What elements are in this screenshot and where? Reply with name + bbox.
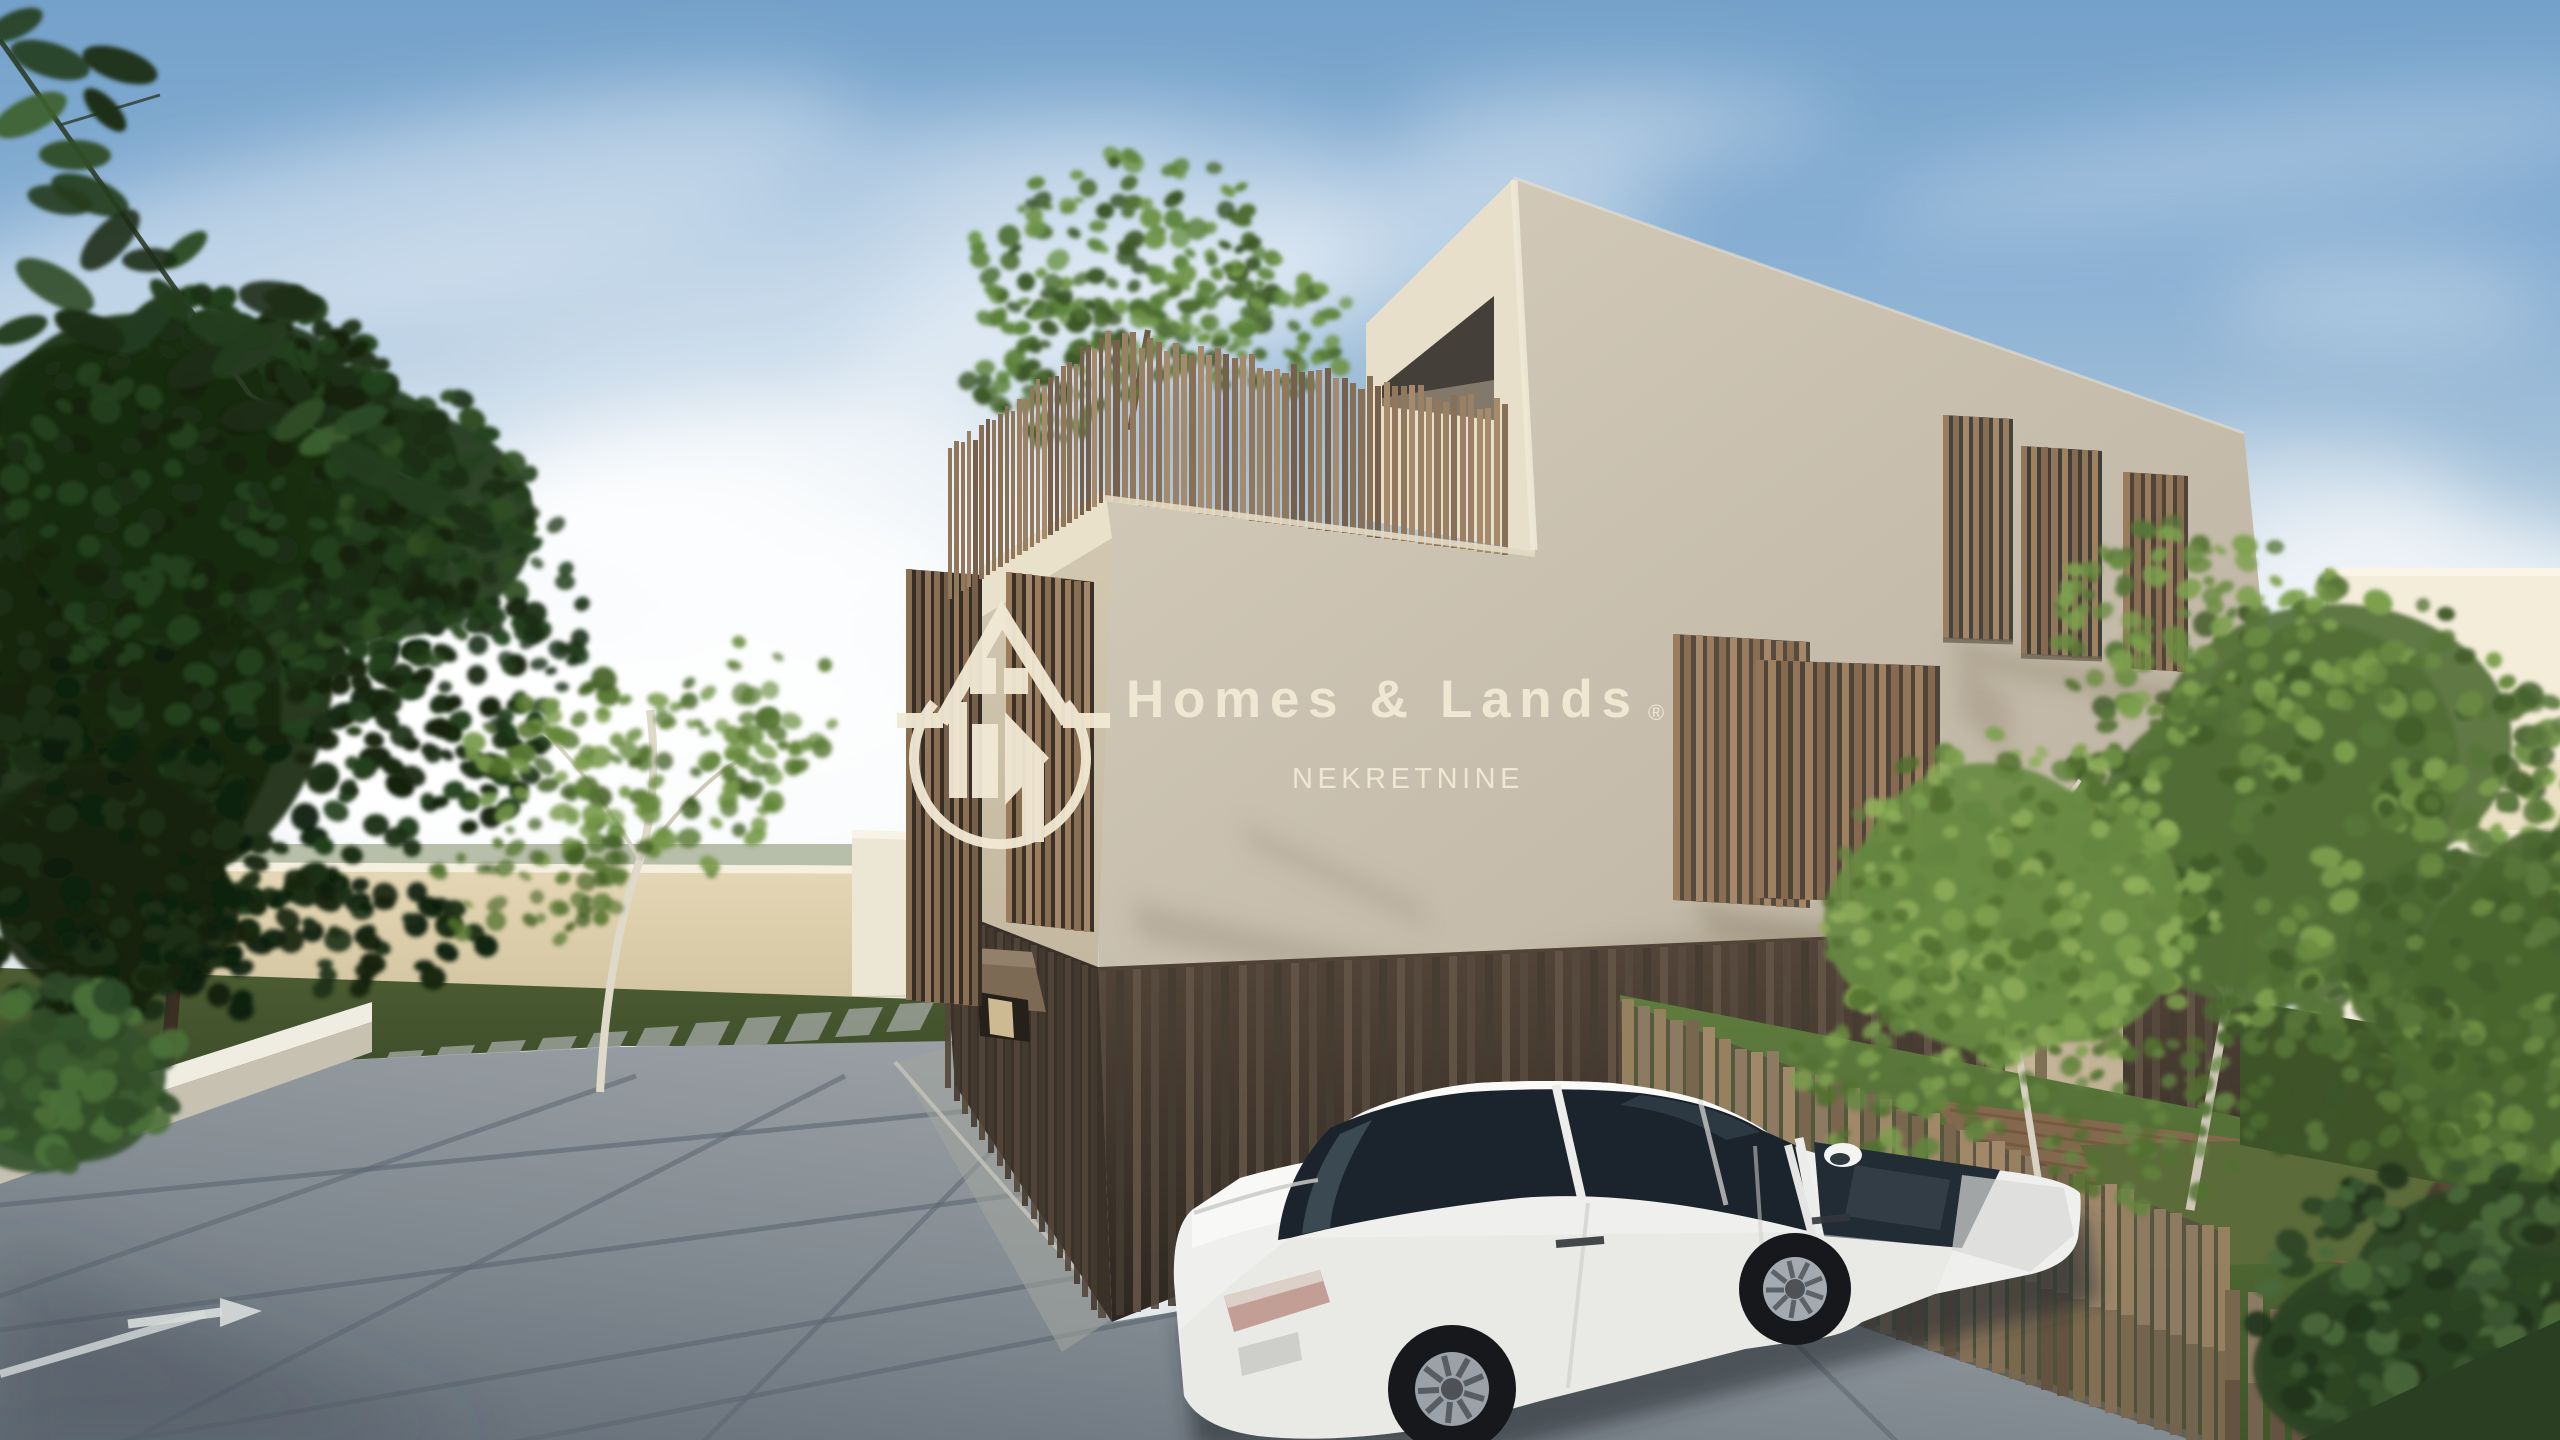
- svg-text:Homes & Lands: Homes & Lands: [1126, 670, 1640, 729]
- svg-text:®: ®: [1648, 700, 1664, 725]
- svg-text:NEKRETNINE: NEKRETNINE: [1292, 763, 1524, 795]
